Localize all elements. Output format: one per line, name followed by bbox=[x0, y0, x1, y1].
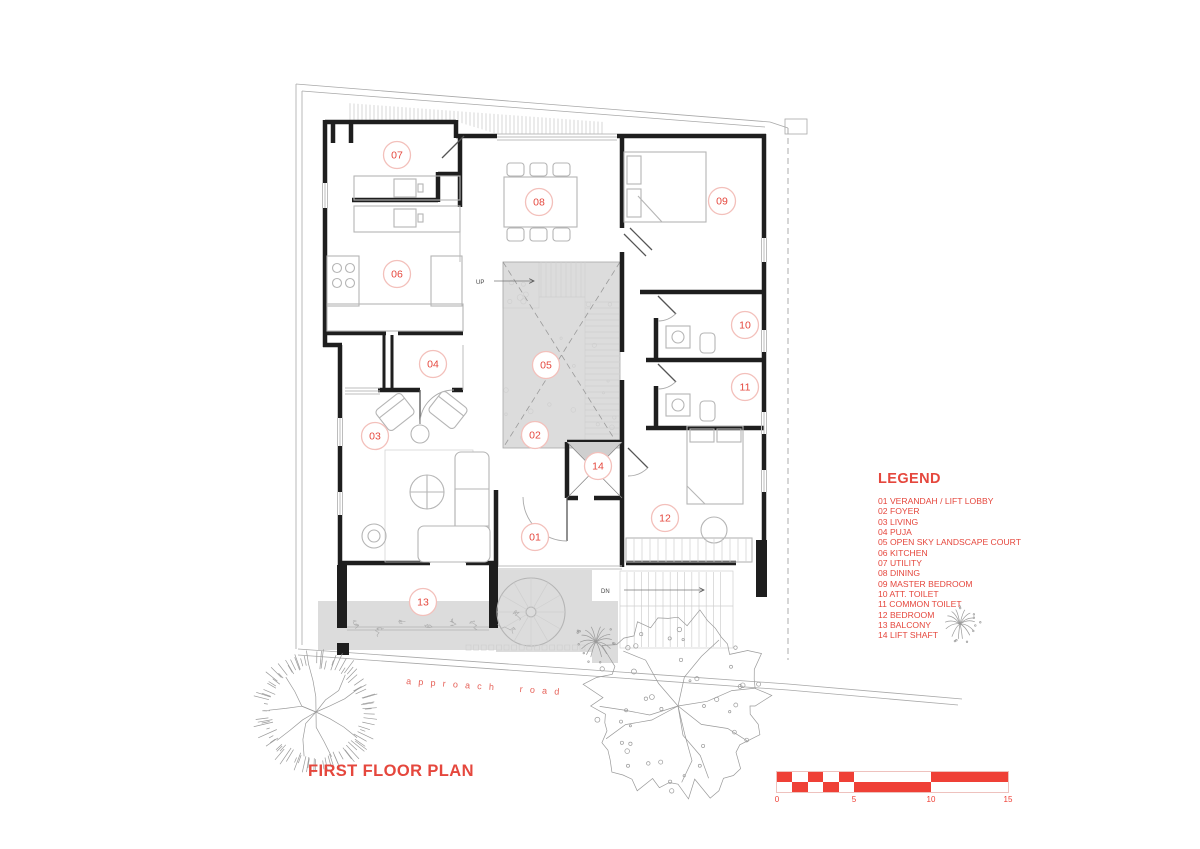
legend-item: 04 PUJA bbox=[878, 527, 1021, 537]
room-marker-11: 11 bbox=[732, 374, 759, 401]
room-marker-03: 03 bbox=[362, 423, 389, 450]
scale-tick: 10 bbox=[927, 795, 936, 804]
legend-item: 03 LIVING bbox=[878, 517, 1021, 527]
legend-item: 10 ATT. TOILET bbox=[878, 589, 1021, 599]
legend-item: 14 LIFT SHAFT bbox=[878, 630, 1021, 640]
room-marker-01: 01 bbox=[522, 524, 549, 551]
legend-item: 01 VERANDAH / LIFT LOBBY bbox=[878, 496, 1021, 506]
legend-list: 01 VERANDAH / LIFT LOBBY 02 FOYER 03 LIV… bbox=[878, 496, 1021, 641]
svg-text:02: 02 bbox=[529, 430, 541, 442]
approach-road-label: approach road bbox=[406, 676, 567, 697]
svg-text:04: 04 bbox=[427, 359, 439, 371]
legend-item: 02 FOYER bbox=[878, 506, 1021, 516]
up-label: UP bbox=[476, 280, 484, 286]
svg-text:13: 13 bbox=[417, 597, 429, 609]
legend-item: 12 BEDROOM bbox=[878, 610, 1021, 620]
svg-text:12: 12 bbox=[659, 513, 671, 525]
scale-tick: 15 bbox=[1004, 795, 1013, 804]
master-bed bbox=[624, 152, 706, 222]
legend-title: LEGEND bbox=[878, 471, 1021, 487]
svg-text:09: 09 bbox=[716, 196, 728, 208]
svg-text:14: 14 bbox=[592, 461, 604, 473]
legend-item: 13 BALCONY bbox=[878, 620, 1021, 630]
svg-text:11: 11 bbox=[740, 382, 751, 394]
room-marker-09: 09 bbox=[709, 188, 736, 215]
room-marker-10: 10 bbox=[732, 312, 759, 339]
room-marker-14: 14 bbox=[585, 453, 612, 480]
balcony-pier bbox=[489, 565, 498, 628]
scale-bar-bottom-row bbox=[777, 782, 1008, 792]
tree bbox=[254, 649, 378, 772]
column bbox=[337, 643, 349, 655]
balcony-pier bbox=[337, 565, 347, 628]
room-marker-05: 05 bbox=[533, 352, 560, 379]
svg-text:10: 10 bbox=[739, 320, 751, 332]
master-bedroom-door bbox=[624, 228, 652, 256]
scale-bar-top-row bbox=[777, 772, 1008, 782]
svg-text:05: 05 bbox=[540, 360, 552, 372]
floor-plan-drawing: UP bbox=[0, 0, 1200, 849]
legend-item: 09 MASTER BEDROOM bbox=[878, 579, 1021, 589]
room-marker-12: 12 bbox=[652, 505, 679, 532]
legend-item: 05 OPEN SKY LANDSCAPE COURT bbox=[878, 537, 1021, 547]
external-stair: DN bbox=[601, 571, 733, 648]
legend: LEGEND 01 VERANDAH / LIFT LOBBY 02 FOYER… bbox=[878, 471, 1021, 641]
room-marker-04: 04 bbox=[420, 351, 447, 378]
legend-item: 06 KITCHEN bbox=[878, 548, 1021, 558]
svg-text:01: 01 bbox=[529, 532, 541, 544]
room-marker-06: 06 bbox=[384, 261, 411, 288]
plan-title: FIRST FLOOR PLAN bbox=[308, 762, 474, 781]
legend-item: 11 COMMON TOILET bbox=[878, 599, 1021, 609]
roof-hatch bbox=[347, 103, 604, 134]
room-marker-07: 07 bbox=[384, 142, 411, 169]
svg-text:03: 03 bbox=[369, 431, 381, 443]
toilet-fixtures bbox=[666, 326, 715, 421]
room-marker-13: 13 bbox=[410, 589, 437, 616]
stair-pier bbox=[756, 540, 767, 597]
svg-text:06: 06 bbox=[391, 269, 403, 281]
scale-bar-labels: 0 5 10 15 bbox=[777, 795, 1008, 805]
room-marker-02: 02 bbox=[522, 422, 549, 449]
scale-bar bbox=[777, 772, 1008, 792]
svg-text:07: 07 bbox=[391, 150, 403, 162]
scale-tick: 5 bbox=[852, 795, 856, 804]
dn-label: DN bbox=[601, 589, 610, 595]
svg-text:08: 08 bbox=[533, 197, 545, 209]
bedroom-bed bbox=[626, 426, 752, 562]
living-furniture bbox=[362, 390, 490, 562]
scale-tick: 0 bbox=[775, 795, 779, 804]
legend-item: 08 DINING bbox=[878, 568, 1021, 578]
legend-item: 07 UTILITY bbox=[878, 558, 1021, 568]
floor-plan-sheet: UP bbox=[0, 0, 1200, 849]
room-marker-08: 08 bbox=[526, 189, 553, 216]
puja-wall bbox=[384, 335, 392, 390]
utility-counter bbox=[354, 176, 460, 232]
